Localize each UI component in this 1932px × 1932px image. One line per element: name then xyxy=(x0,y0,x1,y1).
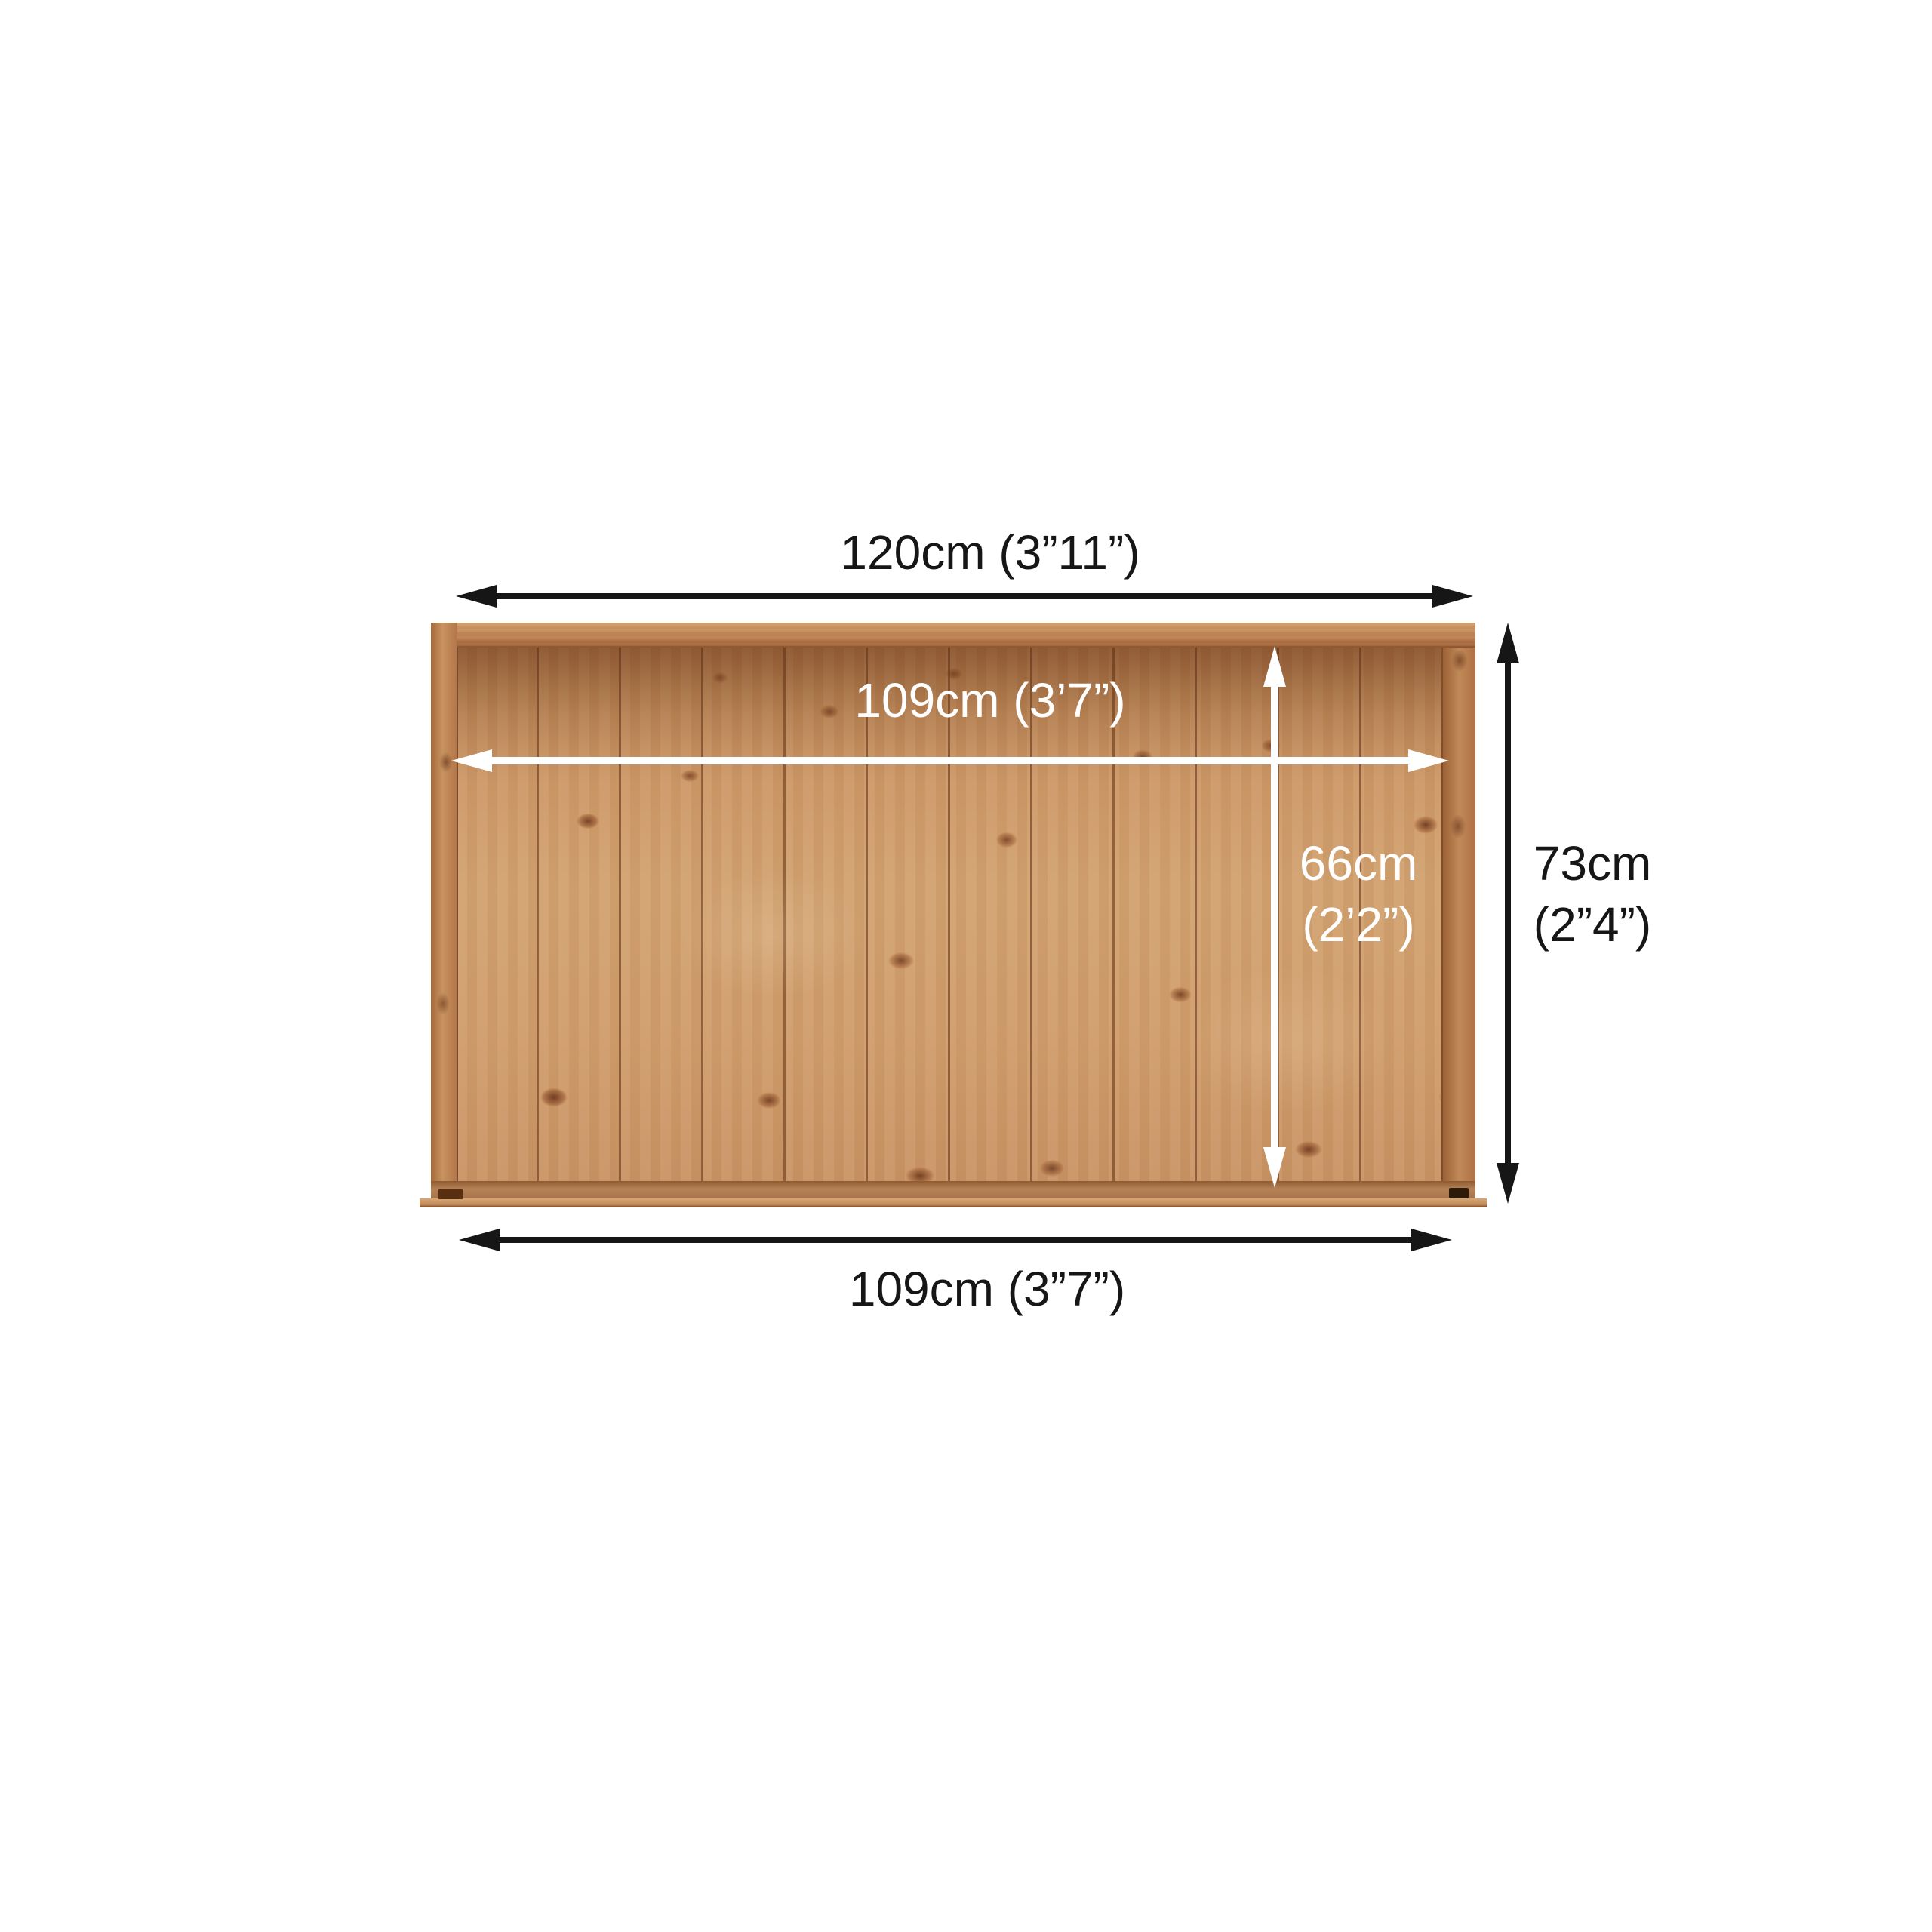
inner-width-label: 109cm (3’7”) xyxy=(854,670,1125,731)
outer-width-arrow xyxy=(456,585,1473,608)
panel-top-rail xyxy=(457,623,1475,648)
inner-height-label: 66cm (2’2”) xyxy=(1300,833,1418,955)
outer-width-label: 120cm (3”11”) xyxy=(840,522,1140,583)
arrowhead-down-icon xyxy=(1263,1147,1286,1188)
outer-height-label: 73cm (2”4”) xyxy=(1534,833,1652,955)
panel-left-stile xyxy=(431,623,458,1181)
arrow-shaft xyxy=(494,1237,1417,1243)
dimension-diagram: 120cm (3”11”) 109cm (3’7”) 66cm (2’2”) 7… xyxy=(0,0,1932,1932)
inner-height-arrow xyxy=(1263,646,1286,1188)
arrow-shaft xyxy=(1505,657,1511,1169)
panel-foot-left xyxy=(438,1189,463,1199)
panel-bottom-rail xyxy=(431,1181,1475,1198)
panel-base-sill xyxy=(420,1198,1487,1207)
panel-right-stile xyxy=(1441,623,1475,1181)
panel-foot-right xyxy=(1449,1188,1469,1198)
arrow-shaft xyxy=(1271,681,1278,1153)
arrow-shaft xyxy=(491,593,1438,599)
arrowhead-right-icon xyxy=(1408,749,1449,772)
base-width-arrow xyxy=(459,1229,1452,1251)
arrowhead-right-icon xyxy=(1432,585,1473,608)
inner-width-arrow xyxy=(451,749,1449,772)
arrowhead-right-icon xyxy=(1411,1229,1452,1251)
base-width-label: 109cm (3”7”) xyxy=(849,1259,1125,1320)
arrowhead-down-icon xyxy=(1497,1163,1519,1204)
outer-height-arrow xyxy=(1497,623,1519,1204)
